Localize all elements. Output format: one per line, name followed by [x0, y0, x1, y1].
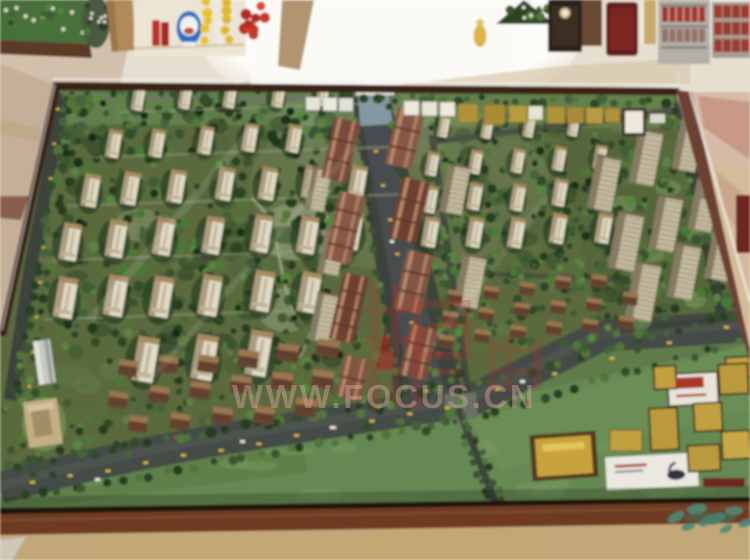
svg-text:WWW.FOCUS.CN: WWW.FOCUS.CN: [232, 378, 536, 415]
